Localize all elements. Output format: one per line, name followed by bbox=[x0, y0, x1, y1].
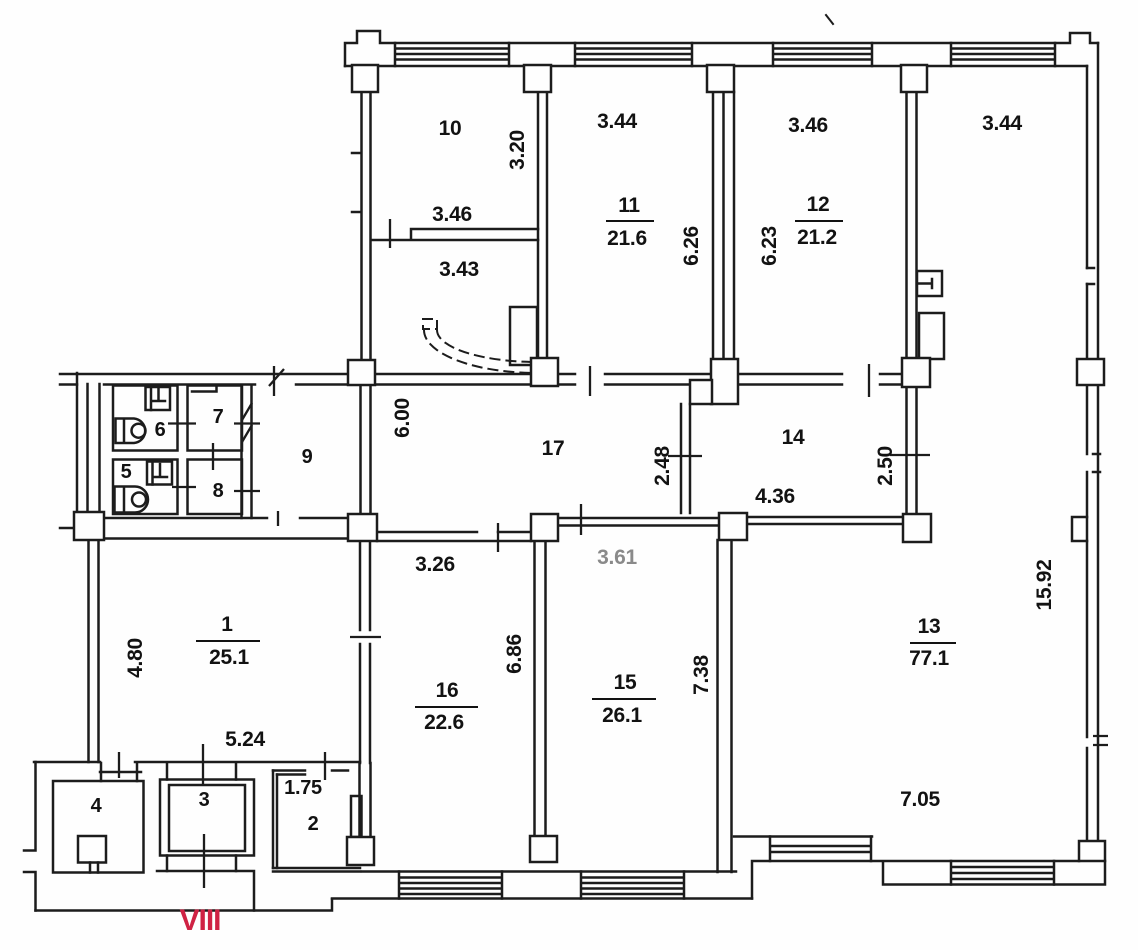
svg-text:7.38: 7.38 bbox=[690, 655, 713, 695]
svg-text:16: 16 bbox=[436, 679, 459, 702]
svg-text:9: 9 bbox=[302, 446, 313, 468]
svg-text:5.24: 5.24 bbox=[225, 728, 265, 751]
svg-text:6.26: 6.26 bbox=[680, 226, 703, 266]
svg-text:3: 3 bbox=[199, 789, 210, 811]
svg-text:15: 15 bbox=[614, 671, 637, 694]
svg-text:3.44: 3.44 bbox=[597, 110, 637, 133]
svg-text:6.23: 6.23 bbox=[758, 226, 781, 266]
svg-text:7: 7 bbox=[213, 406, 224, 428]
svg-text:3.61: 3.61 bbox=[597, 546, 637, 569]
svg-text:VIII: VIII bbox=[179, 904, 220, 937]
svg-text:4.80: 4.80 bbox=[124, 638, 147, 678]
svg-text:3.46: 3.46 bbox=[788, 114, 828, 137]
svg-text:8: 8 bbox=[213, 480, 224, 502]
svg-text:4: 4 bbox=[91, 795, 103, 817]
svg-text:13: 13 bbox=[918, 615, 941, 638]
svg-text:2.50: 2.50 bbox=[874, 446, 897, 486]
svg-text:7.05: 7.05 bbox=[900, 788, 940, 811]
svg-text:3.26: 3.26 bbox=[415, 553, 455, 576]
svg-text:11: 11 bbox=[618, 194, 640, 217]
svg-text:3.44: 3.44 bbox=[982, 112, 1022, 135]
svg-text:10: 10 bbox=[439, 117, 462, 140]
svg-text:2.48: 2.48 bbox=[651, 446, 674, 486]
svg-text:1: 1 bbox=[221, 613, 233, 636]
svg-text:1.75: 1.75 bbox=[284, 777, 322, 799]
svg-text:2: 2 bbox=[308, 813, 319, 835]
svg-text:17: 17 bbox=[542, 437, 565, 460]
svg-text:6: 6 bbox=[155, 419, 166, 441]
svg-text:22.6: 22.6 bbox=[424, 711, 464, 734]
svg-text:15.92: 15.92 bbox=[1033, 559, 1056, 610]
svg-text:12: 12 bbox=[807, 193, 830, 216]
svg-text:14: 14 bbox=[782, 426, 805, 449]
svg-text:6.00: 6.00 bbox=[391, 398, 414, 438]
svg-text:26.1: 26.1 bbox=[602, 704, 642, 727]
svg-text:3.43: 3.43 bbox=[439, 258, 479, 281]
svg-text:21.2: 21.2 bbox=[797, 226, 837, 249]
svg-text:6.86: 6.86 bbox=[503, 634, 526, 674]
svg-text:3.20: 3.20 bbox=[506, 130, 529, 170]
svg-text:3.46: 3.46 bbox=[432, 203, 472, 226]
svg-text:4.36: 4.36 bbox=[755, 485, 795, 508]
svg-text:5: 5 bbox=[121, 461, 132, 483]
svg-text:25.1: 25.1 bbox=[209, 646, 249, 669]
svg-text:77.1: 77.1 bbox=[909, 647, 949, 670]
svg-text:21.6: 21.6 bbox=[607, 227, 647, 250]
